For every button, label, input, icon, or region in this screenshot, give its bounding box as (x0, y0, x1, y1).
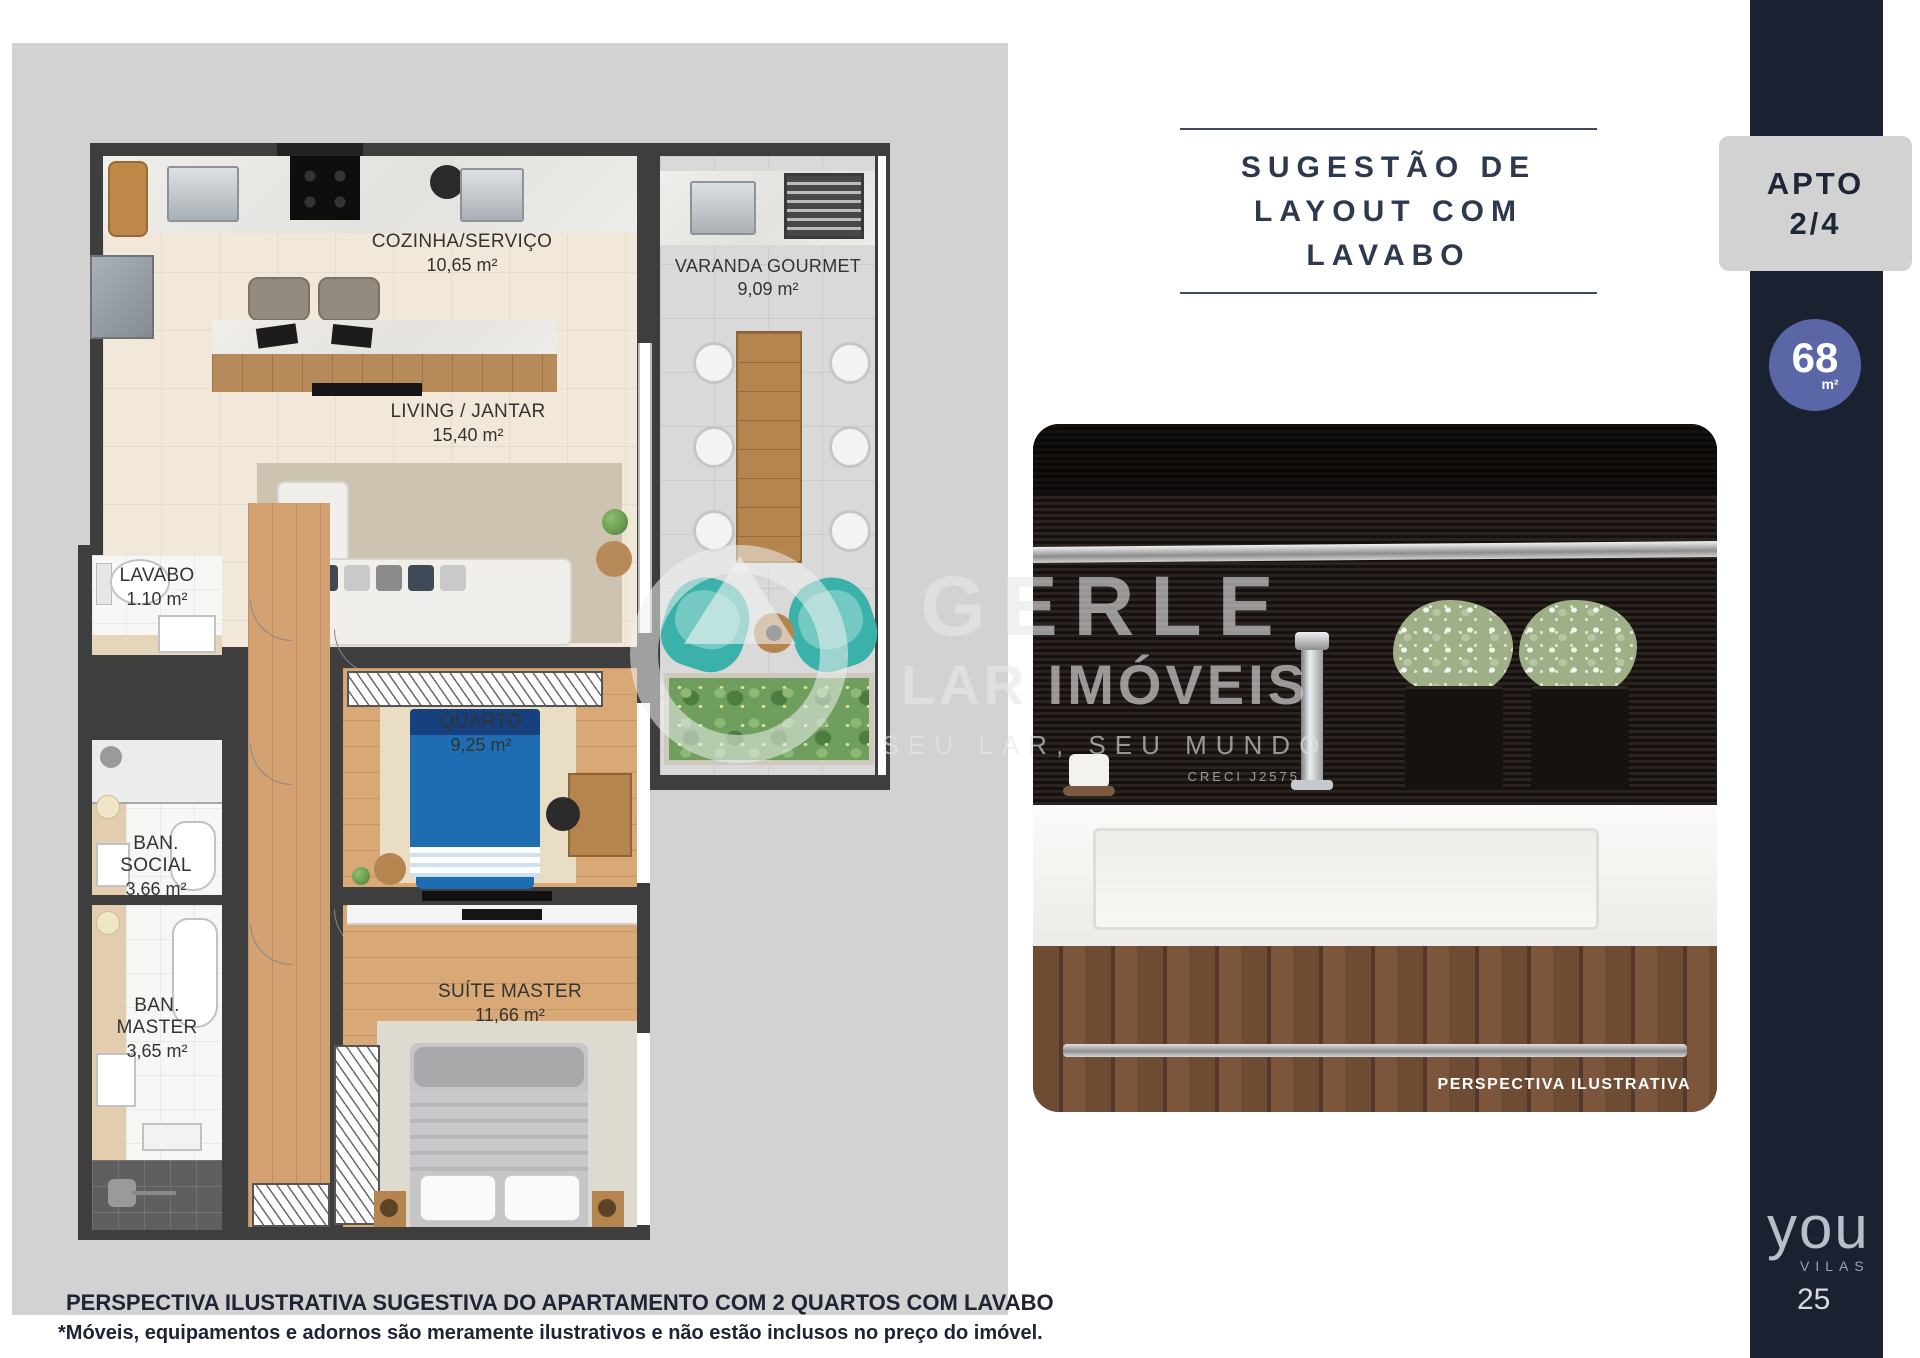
varanda-sink (690, 181, 756, 235)
photo-caption: PERSPECTIVA ILUSTRATIVA (1438, 1076, 1691, 1094)
kitchen-sink-left (167, 166, 239, 222)
bed-duvet-folds (410, 1091, 588, 1171)
bed-pillow (504, 1175, 580, 1221)
cutting-board-icon (108, 161, 148, 237)
room-label-ban-master: BAN. MASTER 3,65 m² (95, 995, 219, 1062)
nightstand (374, 853, 406, 885)
faucet-head-icon (1295, 632, 1329, 650)
bed-foot-bench (416, 877, 534, 889)
sconce-icon (598, 1199, 616, 1217)
faucet-base-icon (1291, 780, 1333, 790)
room-name: SUÍTE MASTER (390, 981, 630, 1003)
kitchen-stool (318, 277, 380, 321)
plant-icon (352, 867, 370, 885)
window-band (637, 703, 650, 883)
room-name: LAVABO (96, 565, 218, 587)
room-label-living: LIVING / JANTAR 15,40 m² (348, 401, 588, 446)
dining-chair (693, 342, 735, 384)
bathroom-perspective-photo: PERSPECTIVA ILUSTRATIVA (1033, 424, 1717, 1112)
photo-drawer-handle (1063, 1044, 1687, 1057)
grill-icon (784, 173, 864, 239)
sofa-pillow (344, 565, 370, 591)
side-table (596, 541, 632, 577)
hall-wardrobe (252, 1183, 330, 1227)
photo-basin (1093, 828, 1599, 930)
cabinet-icon (142, 1123, 202, 1151)
apto-badge-line-1: APTO (1767, 164, 1865, 204)
planter-cube (1405, 686, 1503, 790)
dining-chair (829, 510, 871, 552)
room-name: LIVING / JANTAR (348, 401, 588, 423)
room-area: 9,09 m² (669, 279, 867, 300)
flower-bush (1393, 600, 1513, 696)
section-title: SUGESTÃO DE LAYOUT COM LAVABO (1180, 128, 1597, 294)
page-number: 25 (1797, 1283, 1830, 1317)
room-label-ban-social: BAN. SOCIAL 3,66 m² (95, 833, 217, 900)
room-label-varanda: VARANDA GOURMET 9,09 m² (669, 256, 867, 300)
room-label-lavabo: LAVABO 1.10 m² (96, 565, 218, 610)
room-name: VARANDA GOURMET (669, 256, 867, 277)
room-name: QUARTO (361, 711, 601, 733)
tv-icon (422, 891, 552, 901)
kettle-icon (430, 165, 464, 199)
title-line-2: LAYOUT COM LAVABO (1180, 190, 1597, 278)
dining-chair (829, 342, 871, 384)
room-label-quarto: QUARTO 9,25 m² (361, 711, 601, 756)
room-area: 3,66 m² (95, 879, 217, 900)
window-band (637, 1033, 650, 1225)
room-area: 15,40 m² (348, 425, 588, 446)
dining-table (736, 331, 802, 563)
soap-dish-icon (1063, 786, 1115, 796)
planter-box (664, 673, 874, 765)
fridge-cabinet (90, 255, 154, 339)
shower-arm-icon (132, 1191, 176, 1195)
varanda-railing (878, 156, 886, 775)
area-badge-value: 68 (1792, 339, 1839, 377)
desk-chair (546, 797, 580, 831)
area-badge: 68 m² (1769, 319, 1861, 411)
you-vilas-logo-sub: VILAS (1800, 1258, 1870, 1274)
room-area: 3,65 m² (95, 1041, 219, 1062)
dining-chair (693, 510, 735, 552)
flower-icon (96, 795, 120, 819)
room-area: 10,65 m² (342, 255, 582, 276)
soap-dispenser-icon (1069, 754, 1109, 788)
room-label-suite: SUÍTE MASTER 11,66 m² (390, 981, 630, 1026)
room-label-cozinha: COZINHA/SERVIÇO 10,65 m² (342, 231, 582, 276)
room-name: BAN. MASTER (95, 995, 219, 1039)
quarto-closet (347, 671, 603, 707)
sliding-door-varanda (638, 343, 652, 633)
shower-head-icon (100, 746, 122, 768)
room-area: 9,25 m² (361, 735, 601, 756)
dining-chair (829, 426, 871, 468)
sofa-pillow (408, 565, 434, 591)
planter-cube (1531, 686, 1629, 790)
area-badge-unit: m² (1821, 377, 1838, 391)
footer-disclaimer: *Móveis, equipamentos e adornos são mera… (58, 1322, 1043, 1345)
sconce-icon (380, 1199, 398, 1217)
dining-chair (693, 426, 735, 468)
cooktop-icon (290, 156, 360, 220)
room-area: 11,66 m² (390, 1005, 630, 1026)
placemat-icon (331, 324, 373, 348)
apto-badge: APTO 2/4 (1719, 136, 1912, 271)
room-area: 1.10 m² (96, 589, 218, 610)
faucet-icon (1301, 642, 1323, 788)
coffee-table-decor (766, 625, 782, 641)
photo-ceiling-shadow (1033, 424, 1717, 494)
sink-icon (158, 615, 216, 653)
floor-plan-canvas: COZINHA/SERVIÇO 10,65 m² LIVING / JANTAR… (12, 43, 1008, 1315)
you-vilas-logo: you (1767, 1200, 1870, 1256)
title-rule-bottom (1180, 292, 1597, 294)
footer-caption: PERSPECTIVA ILUSTRATIVA SUGESTIVA DO APA… (66, 1290, 1054, 1316)
tv-icon (462, 909, 542, 920)
room-name: BAN. SOCIAL (95, 833, 217, 877)
kitchen-stool (248, 277, 310, 321)
kitchen-sink-right (460, 168, 524, 222)
sofa-pillow (376, 565, 402, 591)
tv-icon (312, 383, 422, 396)
bed-foot-throw (410, 847, 540, 877)
flower-icon (96, 911, 120, 935)
room-name: COZINHA/SERVIÇO (342, 231, 582, 253)
sofa-pillow (440, 565, 466, 591)
bed-bolster (414, 1047, 584, 1087)
title-line-1: SUGESTÃO DE (1180, 146, 1597, 190)
range-hood-icon (277, 143, 363, 156)
bed-pillow (420, 1175, 496, 1221)
flower-bush (1519, 600, 1637, 696)
plant-icon (602, 509, 628, 535)
apto-badge-line-2: 2/4 (1789, 204, 1841, 244)
